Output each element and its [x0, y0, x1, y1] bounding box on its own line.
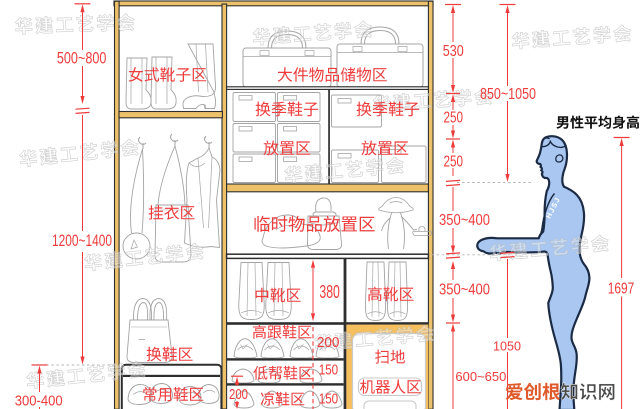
svg-text:250: 250 [444, 154, 464, 171]
svg-text:300-400: 300-400 [15, 393, 63, 409]
svg-text:350~400: 350~400 [439, 212, 490, 229]
svg-text:1200~1400: 1200~1400 [52, 232, 112, 250]
svg-text:200: 200 [229, 387, 248, 403]
svg-text:250: 250 [444, 110, 464, 127]
svg-text:500~800: 500~800 [57, 50, 107, 68]
svg-text:150: 150 [319, 391, 339, 407]
svg-text:600~650: 600~650 [455, 369, 506, 384]
svg-text:200: 200 [317, 335, 340, 351]
svg-text:380: 380 [319, 281, 340, 302]
svg-text:530: 530 [443, 43, 464, 60]
svg-text:1050: 1050 [493, 338, 521, 353]
svg-text:150: 150 [319, 363, 339, 379]
svg-text:350~400: 350~400 [439, 282, 490, 299]
svg-text:1697: 1697 [608, 280, 635, 297]
svg-text:850~1050: 850~1050 [480, 86, 536, 103]
